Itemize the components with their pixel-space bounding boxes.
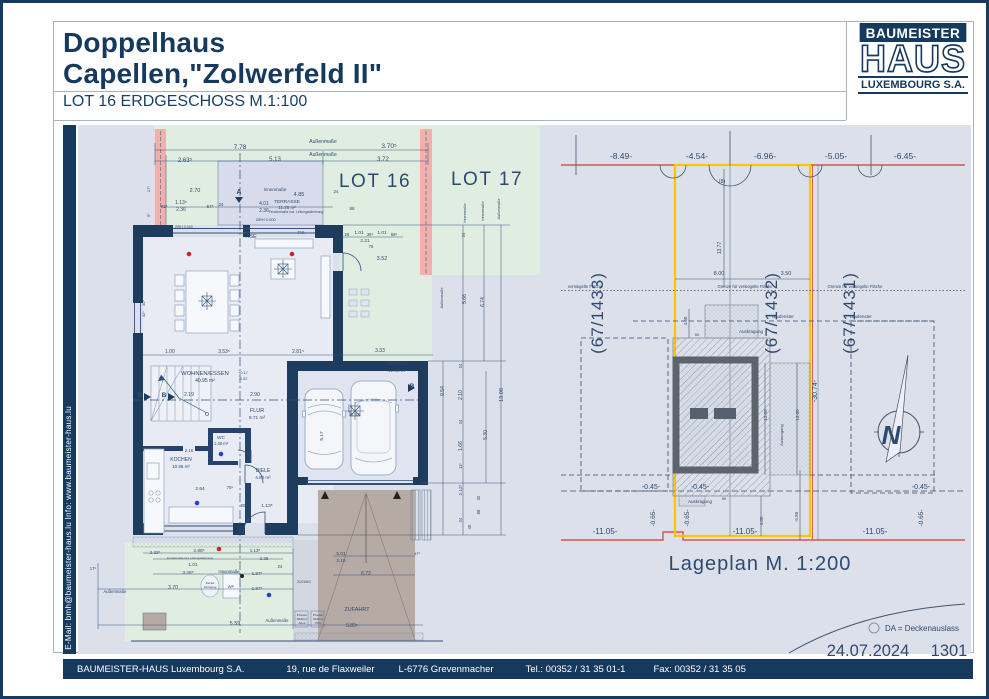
divider bbox=[846, 21, 847, 120]
dim-label: 2.36 bbox=[259, 208, 269, 214]
footer-fax: Fax: 00352 / 31 35 05 bbox=[653, 664, 745, 675]
wp-unit: WP bbox=[228, 584, 235, 589]
dim-label: 5.13 bbox=[269, 157, 281, 163]
dim-label: HSE bbox=[245, 234, 257, 240]
dim-label: 3.72 bbox=[377, 157, 389, 163]
dim-label: 17⁵ bbox=[90, 566, 97, 571]
dim-label: -6.45- bbox=[894, 151, 916, 161]
dim-label: 1.87⁵ bbox=[252, 571, 263, 576]
dim-label: Auskragung bbox=[739, 329, 764, 334]
dim-label: ÖKO bbox=[315, 621, 322, 625]
dim-label: 5.89⁵ bbox=[346, 623, 358, 629]
dim-label: 3.53⁵ bbox=[218, 349, 230, 355]
dim-label: 9⁵ bbox=[146, 213, 151, 217]
dim-label: 24 bbox=[458, 363, 463, 368]
dim-label: Außenmaße bbox=[265, 618, 289, 623]
dim-label: Außenmaße bbox=[309, 152, 337, 158]
room-flur: FLUR bbox=[250, 408, 264, 414]
legend-da: DA = Deckenauslass bbox=[885, 624, 959, 633]
dim-label: 50 bbox=[722, 496, 727, 501]
dim-label: 2.88⁵ bbox=[193, 548, 204, 554]
sheet-number: 1301 bbox=[931, 642, 968, 658]
dim-label: 4.80 m² bbox=[255, 475, 271, 480]
dim-label: 69⁵ bbox=[391, 232, 398, 237]
title-block: Doppelhaus Capellen,"Zolwerfeld II" LOT … bbox=[63, 27, 382, 111]
dim-label: -11.05- bbox=[863, 527, 888, 536]
dim-label: Außenmaße bbox=[497, 199, 501, 220]
sheet-date: 24.07.2024 bbox=[827, 642, 910, 658]
dim-label: 2.81⁵ bbox=[292, 349, 304, 355]
dim-label: Baufenster bbox=[772, 314, 794, 319]
dim-label: 13.08 bbox=[499, 388, 505, 402]
dim-label: 3.52 bbox=[377, 256, 388, 262]
dim-label: -0.65- bbox=[918, 510, 925, 527]
dim-label: 40.95 m² bbox=[195, 378, 215, 384]
dim-label: 57⁵ bbox=[207, 204, 214, 209]
dim-label: 6.74 bbox=[480, 297, 486, 307]
dim-label: -5.05- bbox=[825, 151, 847, 161]
dim-label: Innenmaße bbox=[218, 569, 240, 574]
dim-label: 8.00 bbox=[714, 271, 725, 277]
house-footprint bbox=[673, 305, 810, 506]
dim-label: 1.13⁵ bbox=[175, 200, 187, 206]
dim-label: 88 bbox=[476, 509, 481, 514]
dim-label: +0.17 bbox=[238, 371, 248, 375]
floor-plan: Außenmaße7.783.70⁵Außenmaße2.63⁵5.133.72… bbox=[78, 125, 548, 654]
dim-label: 2.36 bbox=[176, 207, 186, 213]
dim-label: 7.78 bbox=[234, 144, 247, 151]
dim-label: (8) bbox=[719, 179, 726, 185]
dim-label: 1.13⁵ bbox=[250, 548, 261, 553]
dim-label: -5.50 bbox=[794, 511, 799, 522]
dim-label: 2.64 bbox=[195, 486, 205, 492]
section-marker-b: B bbox=[138, 392, 143, 399]
dim-label: 92⁵ bbox=[161, 204, 168, 209]
dim-label: 30 bbox=[476, 495, 481, 500]
dim-label: 2.36 bbox=[260, 556, 269, 561]
dim-label: Innenmaße bbox=[463, 203, 467, 222]
dim-label: 10.96 m² bbox=[172, 464, 190, 469]
dim-label: 50 bbox=[241, 503, 246, 508]
dim-label: -11.05- bbox=[593, 527, 618, 536]
dim-label: 1.01 bbox=[354, 230, 364, 236]
site-plan: -8.49--4.54--6.96--5.05--6.45-(8)(67/143… bbox=[548, 125, 972, 658]
north-letter: N bbox=[882, 420, 902, 450]
dim-label: Grenze für versiegelte Fläche bbox=[828, 284, 884, 289]
dim-label: BRH 0.000 bbox=[256, 217, 276, 222]
footer-tel: Tel.: 00352 / 31 35 01-1 bbox=[526, 664, 626, 675]
room-kochen: KOCHEN bbox=[170, 457, 192, 463]
dim-label: 2.12⁵ bbox=[458, 484, 463, 495]
dim-label: Auskragung bbox=[779, 424, 784, 445]
dim-label: Fenstermaße incl. Leitungsdämmung bbox=[269, 210, 324, 214]
dim-label: 24 bbox=[458, 517, 463, 522]
dim-label: 1.00 bbox=[165, 349, 175, 355]
dim-label: Außenmaße bbox=[103, 589, 127, 594]
dim-label: 75⁵ bbox=[227, 485, 234, 490]
dim-label: 24 bbox=[333, 189, 339, 194]
dim-label: -30.74- bbox=[812, 379, 819, 402]
dim-label: 6.52 bbox=[350, 412, 360, 418]
dim-label: 13.77 bbox=[717, 242, 723, 255]
dim-label: 41.90 m² bbox=[388, 368, 407, 374]
dim-label: 2.32⁵ bbox=[150, 550, 161, 555]
page-title-line1: Doppelhaus bbox=[63, 27, 382, 58]
dim-label: 4.01 bbox=[259, 201, 269, 207]
zufahrt-label: ZUFAHRT bbox=[344, 607, 370, 613]
section-marker-b: B bbox=[162, 392, 167, 399]
dim-label: 4.00 bbox=[759, 516, 764, 525]
dim-label: 50 bbox=[695, 332, 700, 337]
dim-label: 9.71 m² bbox=[249, 415, 266, 421]
dim-label: 3.28⁵ bbox=[182, 570, 193, 576]
section-marker-a: A bbox=[236, 189, 241, 196]
dim-label: Innenmaße bbox=[481, 201, 485, 220]
dim-label: 11⁵ bbox=[458, 463, 463, 469]
dim-label: -8.49- bbox=[610, 151, 632, 161]
terrace-area bbox=[218, 161, 323, 225]
dim-label: 24 bbox=[218, 202, 224, 207]
footer-address: 19, rue de Flaxweiler bbox=[286, 664, 374, 675]
section-marker-b: B bbox=[410, 383, 415, 390]
dim-label: 17⁵ bbox=[146, 186, 151, 192]
garage-cars bbox=[303, 381, 399, 475]
dim-label: 24 bbox=[458, 419, 463, 424]
dim-label: 5.17 bbox=[319, 431, 325, 441]
dim-label: BRH 0.000 bbox=[175, 225, 193, 229]
dim-label: -0.02 bbox=[239, 377, 248, 381]
drawing-sheet: Doppelhaus Capellen,"Zolwerfeld II" LOT … bbox=[0, 0, 989, 699]
dim-label: 3.70 bbox=[168, 585, 178, 591]
dim-label: 30⁵ bbox=[141, 300, 146, 306]
dim-label: 4.85 bbox=[294, 192, 305, 198]
dim-label: 47⁵ bbox=[414, 551, 420, 556]
dim-label: 6.72 bbox=[361, 571, 371, 577]
dim-label: versiegelte Fläche bbox=[568, 284, 603, 289]
footer-company: BAUMEISTER-HAUS Luxembourg S.A. bbox=[77, 664, 244, 675]
dim-label: 24 bbox=[278, 564, 283, 569]
dim-label: Innenmaße bbox=[264, 187, 287, 192]
logo-haus: HAUS bbox=[858, 41, 968, 77]
dim-label: 2.16 bbox=[185, 448, 194, 453]
dim-label: 76 bbox=[369, 244, 374, 249]
dim-label: -11.05- bbox=[733, 527, 758, 536]
dim-label: 26 bbox=[345, 232, 350, 237]
dim-label: Fenstermaße incl. Leitungsdämmung bbox=[167, 556, 214, 560]
page-subtitle: LOT 16 ERDGESCHOSS M.1:100 bbox=[63, 93, 382, 111]
dim-label: -0.65- bbox=[684, 510, 691, 527]
dim-label: 36⁵ bbox=[367, 232, 374, 237]
dim-label: 1.01 bbox=[377, 230, 387, 236]
dim-label: 2.19 bbox=[184, 392, 194, 398]
footer-bar: BAUMEISTER-HAUS Luxembourg S.A. 19, rue … bbox=[63, 659, 973, 679]
divider bbox=[53, 120, 846, 121]
footer-city: L-6776 Grevenmacher bbox=[399, 664, 494, 675]
dim-label: 2.15 bbox=[336, 558, 346, 564]
dim-label: Außenmaße bbox=[309, 139, 337, 145]
dim-label: 13.00 bbox=[795, 409, 800, 421]
dim-label: FIX bbox=[297, 230, 304, 235]
baumeister-haus-logo: BAUMEISTER HAUS LUXEMBOURG S.A. bbox=[858, 23, 968, 94]
dim-label: 1.13⁵ bbox=[261, 503, 272, 509]
zugang-label: ZUGANG bbox=[297, 580, 311, 584]
room-wohnen-essen: WOHNEN/ESSEN bbox=[181, 371, 229, 377]
dim-label: 1.66 bbox=[458, 441, 464, 451]
dim-label: Aqua bbox=[298, 621, 305, 625]
dim-label: 5.59 bbox=[230, 621, 241, 627]
dim-label: -0.45- bbox=[642, 484, 661, 491]
dim-label: -0.45- bbox=[691, 484, 710, 491]
sidebar-contact-bar: E-Mail: bmh@baumeister-haus.lu Info: www… bbox=[63, 125, 76, 654]
dim-label: 9.54 bbox=[440, 386, 446, 396]
dim-label: 13.00 bbox=[763, 409, 768, 421]
dim-label: 5.30 bbox=[483, 430, 489, 440]
dim-label: Reinigung bbox=[204, 585, 217, 589]
dim-label: 4.00 bbox=[683, 316, 688, 325]
dim-label: 24 bbox=[461, 232, 466, 237]
dim-label: 1.87⁵ bbox=[252, 586, 263, 591]
dim-label: 2.90 bbox=[250, 392, 260, 398]
dim-label: 5.66 bbox=[462, 294, 468, 304]
dim-label: Auskragung bbox=[688, 499, 713, 504]
dim-label: -4.54- bbox=[686, 151, 708, 161]
dim-label: Baufenster bbox=[850, 314, 872, 319]
dim-label: 42⁵ bbox=[141, 311, 146, 317]
room-diele: DIELE bbox=[256, 468, 271, 474]
dim-label: Grenze für versiegelte Fläche bbox=[718, 284, 774, 289]
dim-label: 5.01 bbox=[336, 551, 346, 557]
dim-label: 88 bbox=[349, 206, 355, 211]
sidebar-contact-text: E-Mail: bmh@baumeister-haus.lu Info: www… bbox=[64, 406, 73, 650]
dim-label: 1.01 bbox=[188, 562, 198, 568]
dim-label: 3.33 bbox=[375, 348, 385, 354]
dim-label: 2.63⁵ bbox=[178, 157, 193, 164]
lot16-label: LOT 16 bbox=[339, 171, 411, 192]
dim-label: 2.10 bbox=[458, 390, 464, 400]
room-garage: GARAGE bbox=[385, 361, 409, 367]
dim-label: 3.50 bbox=[781, 271, 792, 277]
dim-label: 46 bbox=[467, 524, 472, 529]
dim-label: -6.96- bbox=[754, 151, 776, 161]
lot17-label: LOT 17 bbox=[451, 169, 523, 190]
site-plan-title: Lageplan M. 1:200 bbox=[669, 553, 852, 575]
dim-label: 3.70⁵ bbox=[381, 143, 397, 150]
dim-label: 1.48 m² bbox=[214, 441, 229, 446]
dim-label: Außenmaße bbox=[440, 288, 444, 309]
dim-label: -0.65- bbox=[650, 510, 657, 527]
dim-label: 2.70 bbox=[190, 188, 201, 194]
dim-label: -0.45- bbox=[912, 484, 931, 491]
page-title-line2: Capellen,"Zolwerfeld II" bbox=[63, 58, 382, 89]
da-legend-icon bbox=[869, 623, 879, 633]
